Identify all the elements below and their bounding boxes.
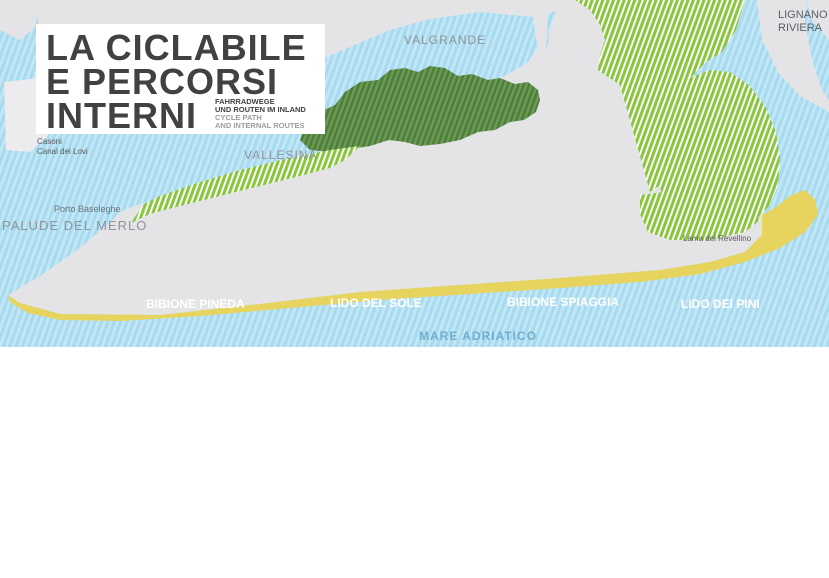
svg-text:PALUDE DEL MERLO: PALUDE DEL MERLO [2,218,147,233]
svg-text:BIBIONE PINEDA: BIBIONE PINEDA [146,297,245,311]
svg-text:INTERNI: INTERNI [46,95,197,136]
svg-text:RIVIERA: RIVIERA [778,22,823,34]
svg-text:VALGRANDE: VALGRANDE [404,33,486,47]
svg-text:MARE ADRIATICO: MARE ADRIATICO [419,329,537,343]
svg-text:LIDO DEI PINI: LIDO DEI PINI [681,297,760,311]
svg-text:Lama del Revellino: Lama del Revellino [683,234,752,243]
svg-text:Porto Baseleghe: Porto Baseleghe [54,204,121,214]
svg-text:VALLESINA: VALLESINA [244,148,317,162]
svg-text:Canal dei Lovi: Canal dei Lovi [37,147,88,156]
svg-text:AND INTERNAL ROUTES: AND INTERNAL ROUTES [215,121,304,130]
svg-text:LIDO DEL SOLE: LIDO DEL SOLE [330,296,422,310]
svg-text:BIBIONE SPIAGGIA: BIBIONE SPIAGGIA [507,295,619,309]
svg-text:Casoni: Casoni [37,137,62,146]
svg-text:LIGNANO: LIGNANO [778,9,828,21]
